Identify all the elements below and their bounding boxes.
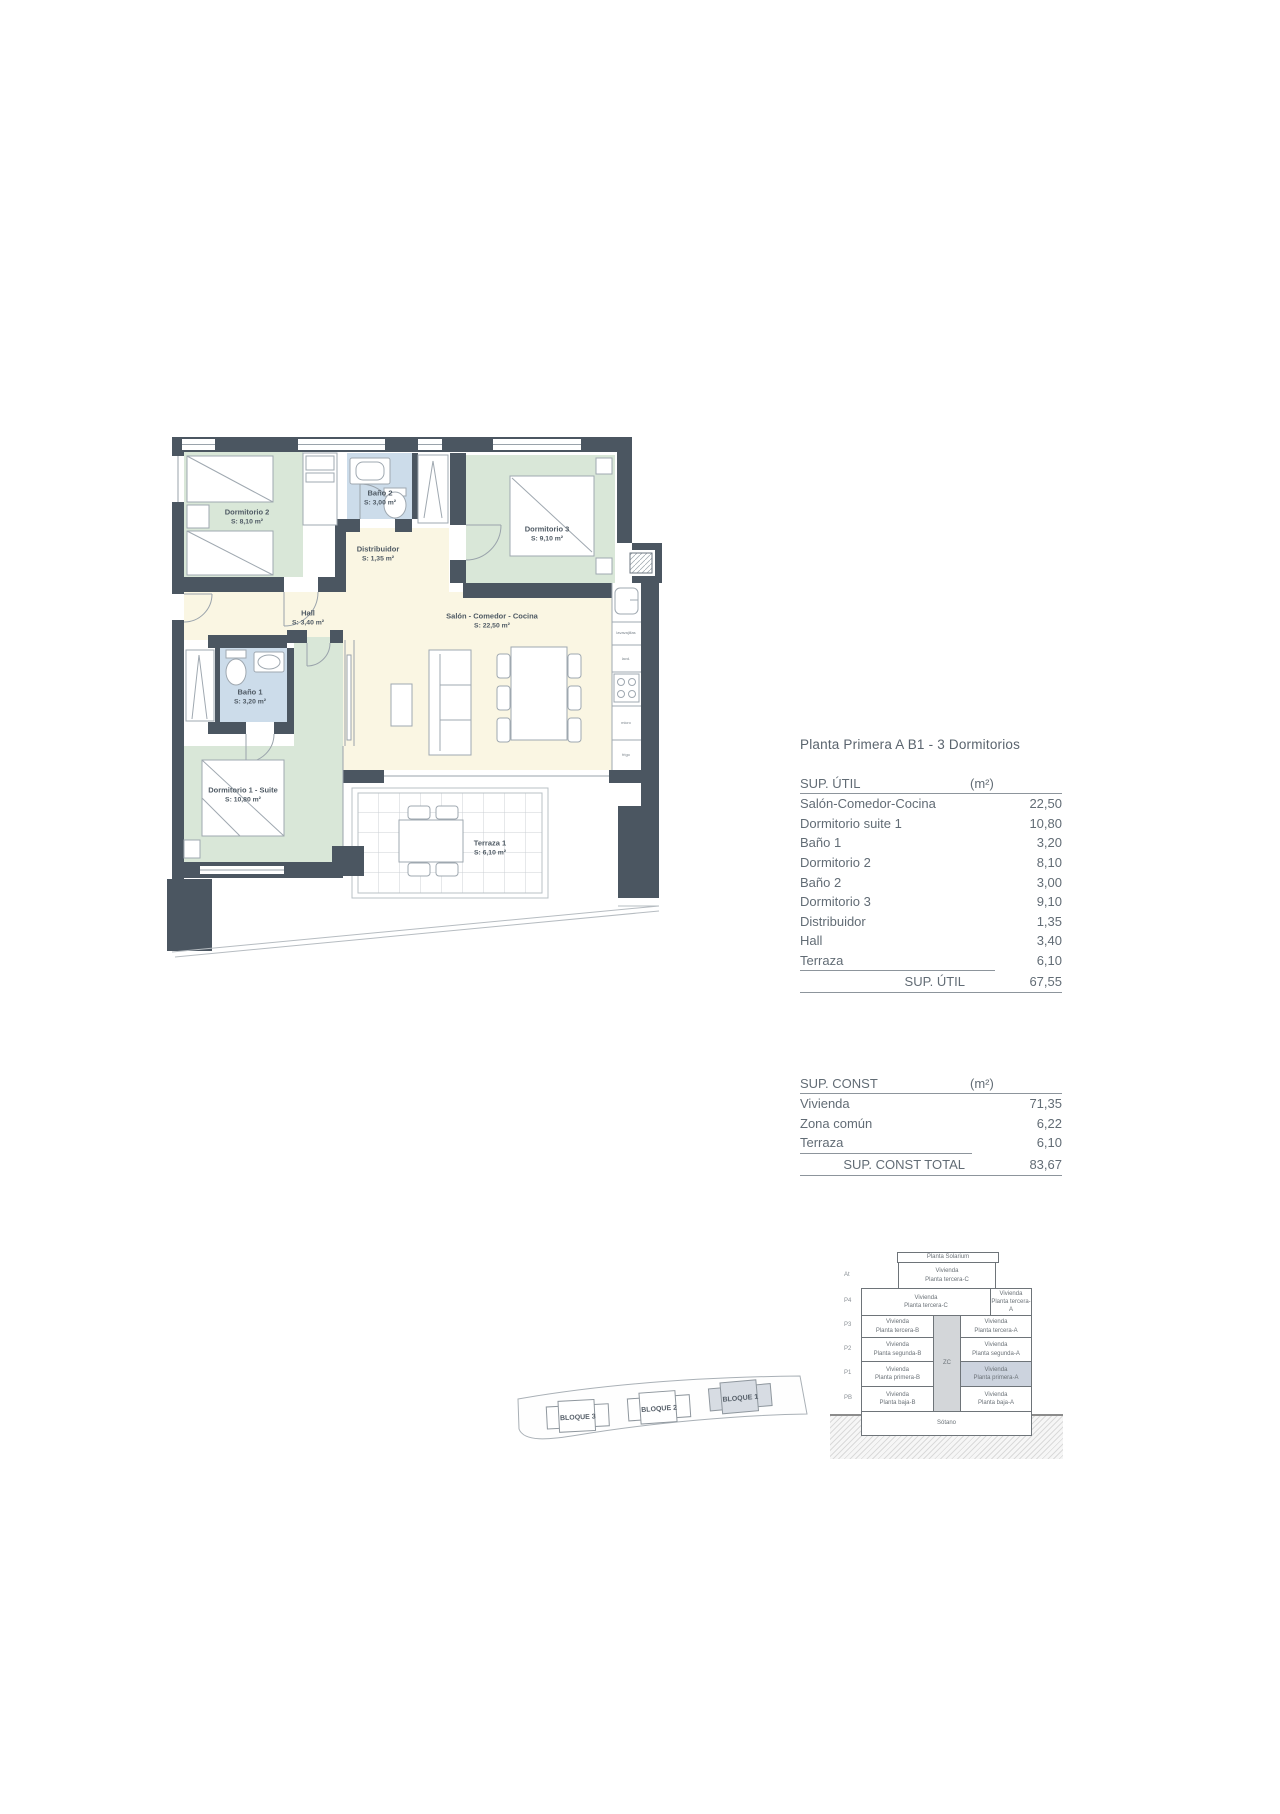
nightstand (596, 558, 612, 574)
chair (497, 686, 510, 710)
table-row: Baño 13,20 (800, 833, 1062, 853)
nightstand (596, 458, 612, 474)
coffee-table (391, 684, 412, 726)
table-total-row: SUP. ÚTIL 67,55 (800, 971, 1062, 992)
room-label-dormitorio2: Dormitorio 2S: 8,10 m² (225, 507, 270, 526)
divider (800, 992, 1062, 993)
chair (568, 686, 581, 710)
cooktop (614, 674, 639, 702)
ground-line (830, 1414, 862, 1416)
table-row: Salón-Comedor-Cocina22,50 (800, 794, 1062, 814)
wardrobe (418, 455, 448, 523)
appliance-label: lavd. (622, 656, 630, 661)
section-cell-atico: ViviendaPlanta tercera-C (898, 1262, 996, 1289)
table-total-row: SUP. CONST TOTAL 83,67 (800, 1154, 1062, 1175)
section-cell-p2-left: ViviendaPlanta segunda-B (861, 1337, 934, 1362)
table-row: Hall3,40 (800, 931, 1062, 951)
room-label-hall: HallS: 3,40 m² (292, 608, 324, 627)
section-cell-p4-left: ViviendaPlanta tercera-C (861, 1288, 991, 1316)
chair (408, 806, 430, 819)
room-label-bano1: Baño 1S: 3,20 m² (234, 687, 266, 706)
room-label-bano2: Baño 2S: 3,00 m² (364, 488, 396, 507)
table-row: Baño 23,00 (800, 872, 1062, 892)
toilet (226, 659, 246, 685)
section-cell-p3-right: ViviendaPlanta tercera-A (960, 1315, 1032, 1338)
toilet-tank (226, 650, 246, 658)
room-label-suite: Dormitorio 1 - SuiteS: 10,80 m² (208, 785, 278, 804)
section-cell-p1-right-highlighted: ViviendaPlanta primera-A (960, 1361, 1032, 1387)
level-tag: P2 (844, 1346, 851, 1352)
level-tag: PB (844, 1395, 852, 1401)
section-cell-sotano: Sótano (861, 1411, 1032, 1436)
level-tag: P1 (844, 1370, 851, 1376)
chair (497, 654, 510, 678)
sup-util-table: SUP. ÚTIL (m²) Salón-Comedor-Cocina22,50… (800, 776, 1062, 993)
chair (408, 863, 430, 876)
section-core-zc: ZC (933, 1315, 961, 1412)
table-header-unit: (m²) (970, 1076, 994, 1091)
table-row: Terraza6,10 (800, 951, 1062, 971)
vent-shaft (630, 553, 652, 573)
room-label-terraza: Terraza 1S: 6,10 m² (474, 838, 506, 857)
table-row: Terraza6,10 (800, 1133, 1062, 1153)
section-cell-p1-left: ViviendaPlanta primera-B (861, 1361, 934, 1387)
divider (800, 1175, 1062, 1176)
table-header-unit: (m²) (970, 776, 994, 791)
table-row: Dormitorio 39,10 (800, 892, 1062, 912)
table-row: Dormitorio 28,10 (800, 853, 1062, 873)
sofa (429, 650, 471, 755)
table-row: Vivienda71,35 (800, 1094, 1062, 1114)
section-cell-pb-right: ViviendaPlanta baja-A (960, 1386, 1032, 1412)
appliance-label: micro (621, 720, 632, 725)
chair (568, 718, 581, 742)
balcony-edge-lines (172, 906, 659, 957)
ground-line (1031, 1414, 1063, 1416)
chair (568, 654, 581, 678)
section-cell-p2-right: ViviendaPlanta segunda-A (960, 1337, 1032, 1362)
sup-util-header: SUP. ÚTIL (m²) (800, 776, 1062, 793)
room-label-dormitorio3: Dormitorio 3S: 9,10 m² (525, 524, 570, 543)
section-cell-p4-right: ViviendaPlanta tercera-A (990, 1288, 1032, 1316)
page-title: Planta Primera A B1 - 3 Dormitorios (800, 737, 1020, 752)
chair (497, 718, 510, 742)
table-row: Zona común6,22 (800, 1114, 1062, 1134)
level-tag: P4 (844, 1298, 851, 1304)
level-tag: At (844, 1272, 850, 1278)
section-cell-p3-left: ViviendaPlanta tercera-B (861, 1315, 934, 1338)
appliance-label: frigo (622, 752, 631, 757)
appliance-label: lavavajillas (616, 630, 635, 635)
terrace-table (399, 820, 463, 862)
plan-sheet-page: lavavajillas lavd. micro frigo (0, 0, 1280, 1814)
nightstand (187, 505, 209, 528)
chair (436, 806, 458, 819)
level-tag: P3 (844, 1322, 851, 1328)
section-cell-pb-left: ViviendaPlanta baja-B (861, 1386, 934, 1412)
kitchen-sink (615, 588, 638, 614)
room-label-salon: Salón - Comedor - CocinaS: 22,50 m² (446, 611, 538, 630)
sup-const-table: SUP. CONST (m²) Vivienda71,35 Zona común… (800, 1076, 1062, 1176)
floor-suite-corridor (294, 637, 343, 746)
table-header-label: SUP. ÚTIL (800, 776, 860, 791)
table-row: Distribuidor1,35 (800, 912, 1062, 932)
chair (436, 863, 458, 876)
nightstand (184, 840, 200, 858)
dining-table (511, 647, 567, 740)
sup-const-header: SUP. CONST (m²) (800, 1076, 1062, 1093)
site-plan: BLOQUE 3 BLOQUE 2 BLOQUE 1 (505, 1368, 825, 1452)
room-label-distribuidor: DistribuidorS: 1,35 m² (357, 544, 400, 563)
table-header-label: SUP. CONST (800, 1076, 878, 1091)
table-row: Dormitorio suite 110,80 (800, 814, 1062, 834)
